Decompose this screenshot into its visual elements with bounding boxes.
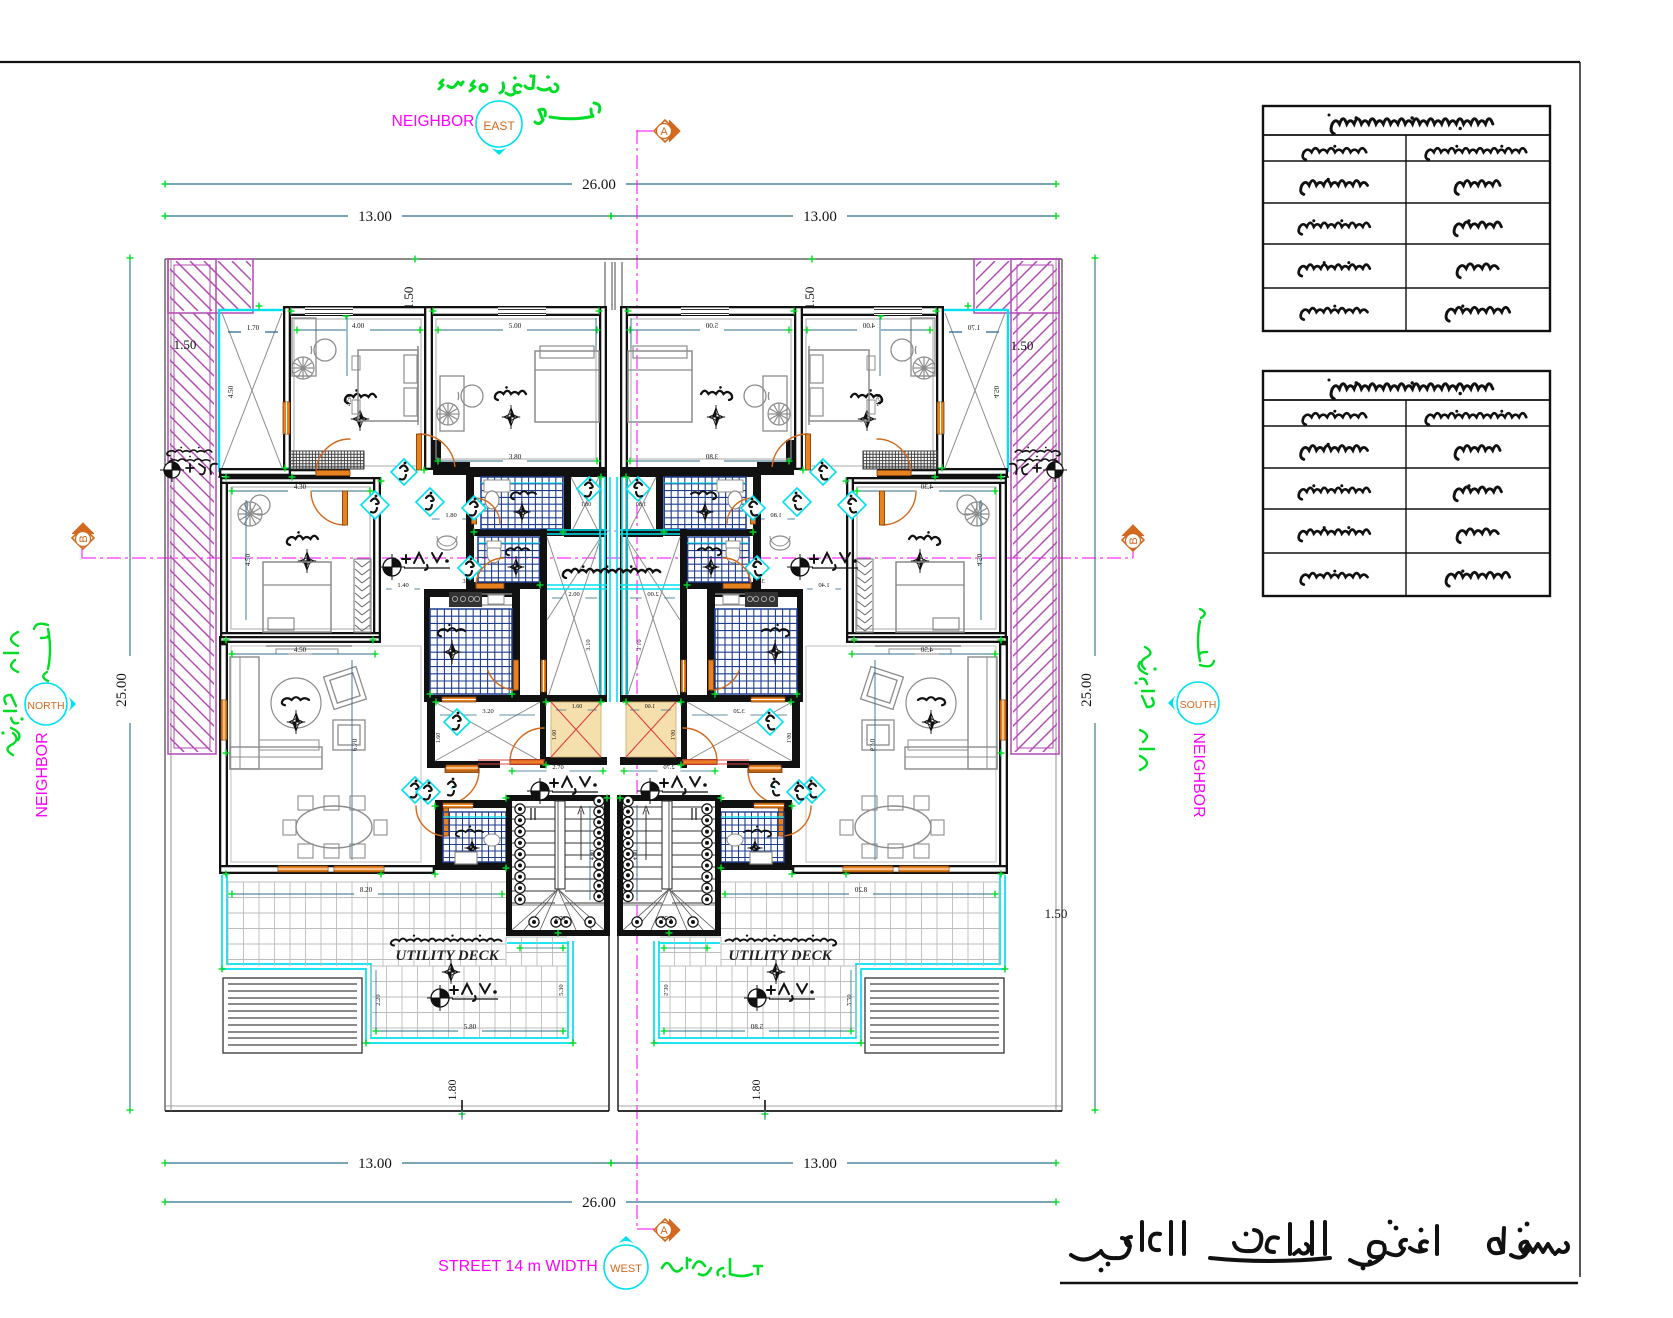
svg-text:NEIGHBOR: NEIGHBOR <box>34 732 51 817</box>
svg-text:2.70: 2.70 <box>555 916 566 922</box>
svg-text:26.00: 26.00 <box>582 177 616 193</box>
svg-text:4.30: 4.30 <box>294 483 307 491</box>
svg-text:A: A <box>660 126 668 138</box>
svg-text:1.80: 1.80 <box>749 1080 763 1101</box>
svg-text:4.50: 4.50 <box>345 393 353 406</box>
svg-text:1.40: 1.40 <box>397 582 408 589</box>
svg-text:STREET 14 m WIDTH: STREET 14 m WIDTH <box>438 1258 598 1275</box>
svg-text:1.50: 1.50 <box>401 287 416 310</box>
svg-text:1.50: 1.50 <box>1045 906 1068 921</box>
svg-text:EAST: EAST <box>483 119 515 133</box>
svg-text:3.20: 3.20 <box>482 708 493 715</box>
svg-text:1.60: 1.60 <box>552 730 558 741</box>
svg-text:13.00: 13.00 <box>803 1156 837 1172</box>
svg-text:4.50: 4.50 <box>244 553 252 566</box>
svg-text:5.00: 5.00 <box>509 322 522 330</box>
svg-text:3.80: 3.80 <box>509 453 522 461</box>
svg-text:1.60: 1.60 <box>572 704 583 710</box>
svg-text:1.80: 1.80 <box>581 502 592 508</box>
svg-text:4.50: 4.50 <box>294 646 307 654</box>
svg-text:B: B <box>78 535 90 542</box>
svg-text:26.00: 26.00 <box>582 1195 616 1211</box>
svg-text:3.00: 3.00 <box>462 578 473 585</box>
svg-text:1.80: 1.80 <box>445 1080 459 1101</box>
svg-text:4.80: 4.80 <box>590 850 596 861</box>
svg-text:1.60: 1.60 <box>436 733 442 744</box>
svg-text:8.20: 8.20 <box>360 886 373 894</box>
svg-text:13.00: 13.00 <box>803 209 837 225</box>
svg-text:SOUTH: SOUTH <box>1180 699 1217 711</box>
svg-text:1.50: 1.50 <box>1011 338 1034 353</box>
svg-text:B: B <box>1128 537 1140 544</box>
svg-text:5.80: 5.80 <box>464 1023 477 1031</box>
svg-text:2.70: 2.70 <box>552 764 563 771</box>
svg-text:1.70: 1.70 <box>247 324 260 332</box>
svg-text:5.30: 5.30 <box>558 984 565 995</box>
svg-text:4.00: 4.00 <box>352 322 365 330</box>
svg-text:25.00: 25.00 <box>1079 673 1095 707</box>
svg-text:1.80: 1.80 <box>445 512 456 519</box>
svg-text:13.00: 13.00 <box>358 209 392 225</box>
svg-text:NEIGHBOR: NEIGHBOR <box>392 113 475 130</box>
svg-text:2.00: 2.00 <box>568 591 579 598</box>
svg-text:4.50: 4.50 <box>227 385 235 398</box>
svg-text:WEST: WEST <box>610 1263 642 1275</box>
svg-text:NEIGHBOR: NEIGHBOR <box>1190 732 1207 817</box>
svg-text:25.00: 25.00 <box>114 673 130 707</box>
svg-text:UTILITY DECK: UTILITY DECK <box>728 948 832 964</box>
svg-text:UTILITY DECK: UTILITY DECK <box>395 948 499 964</box>
svg-text:A: A <box>660 1225 668 1237</box>
svg-text:3.10: 3.10 <box>585 639 592 650</box>
svg-text:13.00: 13.00 <box>358 1156 392 1172</box>
svg-text:1.50: 1.50 <box>802 287 817 310</box>
svg-text:1.50: 1.50 <box>174 337 197 352</box>
svg-text:NORTH: NORTH <box>27 700 64 712</box>
